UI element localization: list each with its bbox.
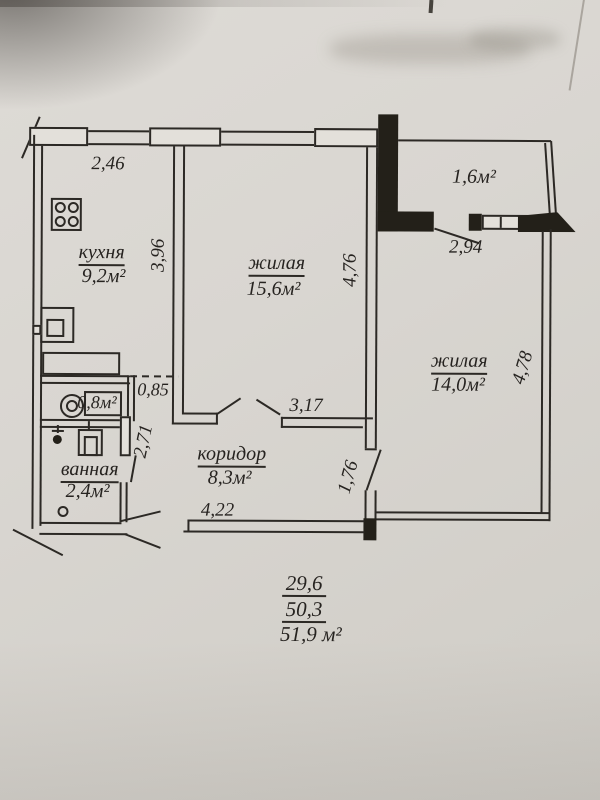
exterior-wall-line [541, 231, 544, 514]
window-line [221, 131, 314, 133]
kitchen-counter [42, 352, 120, 375]
door-leaf [366, 449, 382, 490]
partition-wall-line [125, 482, 127, 522]
column-wall-foot [378, 211, 434, 231]
partition-wall-line [364, 490, 366, 520]
wall-line [40, 419, 123, 421]
stove-burner [68, 216, 79, 227]
room-area-living1: 15,6м² [238, 279, 308, 300]
door-panel [120, 416, 131, 456]
dimension-kitchen-width: 2,46 [78, 154, 138, 174]
room-area-wc: 0,8м² [74, 393, 120, 412]
balcony-top-wall [398, 139, 551, 142]
room-name: кухня [79, 241, 125, 266]
opening-dashed-line [130, 375, 178, 377]
dimension-living1-entry: 3,17 [282, 396, 330, 416]
door-opening-mark [216, 398, 241, 416]
wall-line [183, 530, 364, 533]
wall-line [39, 533, 127, 535]
stove-burner [55, 216, 66, 227]
stove-burner [55, 202, 66, 213]
dimension-balcony-opening: 2,94 [440, 238, 492, 258]
dimension-living2-depth: 4,78 [506, 340, 540, 396]
wall-line [376, 518, 550, 521]
exterior-wall-line [548, 229, 551, 521]
summary-total-area: 51,9 м² [280, 623, 350, 645]
wall-line [377, 511, 551, 514]
room-name: коридор [197, 443, 266, 468]
shower-icon [52, 430, 64, 432]
partition-wall-line [365, 147, 368, 448]
wall-line [40, 426, 123, 428]
dimension-corridor-length: 4,22 [193, 501, 241, 521]
partition-wall-line [182, 146, 185, 412]
room-label-corridor: коридор [194, 444, 270, 465]
room-area-living2: 14,0м² [424, 375, 492, 396]
balcony-sill-block [469, 214, 482, 231]
shower-head [53, 435, 62, 444]
wall-line [39, 522, 121, 524]
wall-line [281, 426, 363, 428]
room-area-corridor: 8,3м² [202, 468, 258, 489]
room-name: жилая [431, 350, 488, 375]
partition-wall-line [119, 482, 121, 522]
floor-drain-icon [57, 506, 68, 517]
wall-line [172, 422, 218, 424]
partition-wall-line [374, 490, 376, 520]
room-name: жилая [248, 252, 305, 277]
wall-panel [29, 127, 88, 146]
dimension-kitchen-depth: 3,96 [149, 230, 169, 280]
window-line [88, 130, 149, 132]
door-jamb [365, 448, 377, 450]
room-area-balcony: 1,6м² [443, 167, 505, 188]
washing-machine-drum [84, 436, 98, 456]
balcony-window-mullion [500, 217, 502, 228]
floorplan-photo: 2,46 кухня 9,2м² 3,96 жилая 15,6м² 4,76 … [0, 0, 600, 800]
entrance-opening-mark [125, 533, 161, 549]
window-line [221, 144, 314, 146]
dimension-bathroom-depth: 2,71 [129, 416, 159, 467]
room-label-living1: жилая [244, 253, 310, 274]
room-label-bathroom: ванная [56, 459, 124, 480]
room-area-bathroom: 2,4м² [60, 481, 116, 502]
wall-line [182, 412, 218, 414]
wall-line [40, 382, 130, 384]
room-label-living2: жилая [426, 351, 492, 372]
room-label-kitchen: кухня [69, 242, 135, 263]
summary-living-area: 29,6 [282, 572, 326, 597]
plan-drawing: 2,46 кухня 9,2м² 3,96 жилая 15,6м² 4,76 … [0, 0, 600, 800]
partition-wall-line [127, 375, 129, 421]
summary-usable-area: 50,3 [282, 598, 326, 623]
door-opening-mark [256, 399, 281, 416]
partition-wall-line [375, 147, 378, 448]
wall-line [281, 417, 373, 419]
sink-bowl [46, 319, 64, 337]
room-area-kitchen: 9,2м² [74, 266, 132, 287]
sink-tap [32, 325, 41, 335]
window-line [88, 143, 149, 145]
wall-panel [149, 127, 221, 146]
dimension-living1-depth: 4,76 [340, 245, 360, 295]
dimension-living2-entry: 1,76 [333, 451, 365, 503]
wall-line [40, 375, 130, 377]
wall-end-block [363, 518, 376, 540]
dimension-wc-width: 0,85 [131, 380, 175, 399]
stove-burner [68, 202, 79, 213]
wall-panel [314, 128, 378, 147]
